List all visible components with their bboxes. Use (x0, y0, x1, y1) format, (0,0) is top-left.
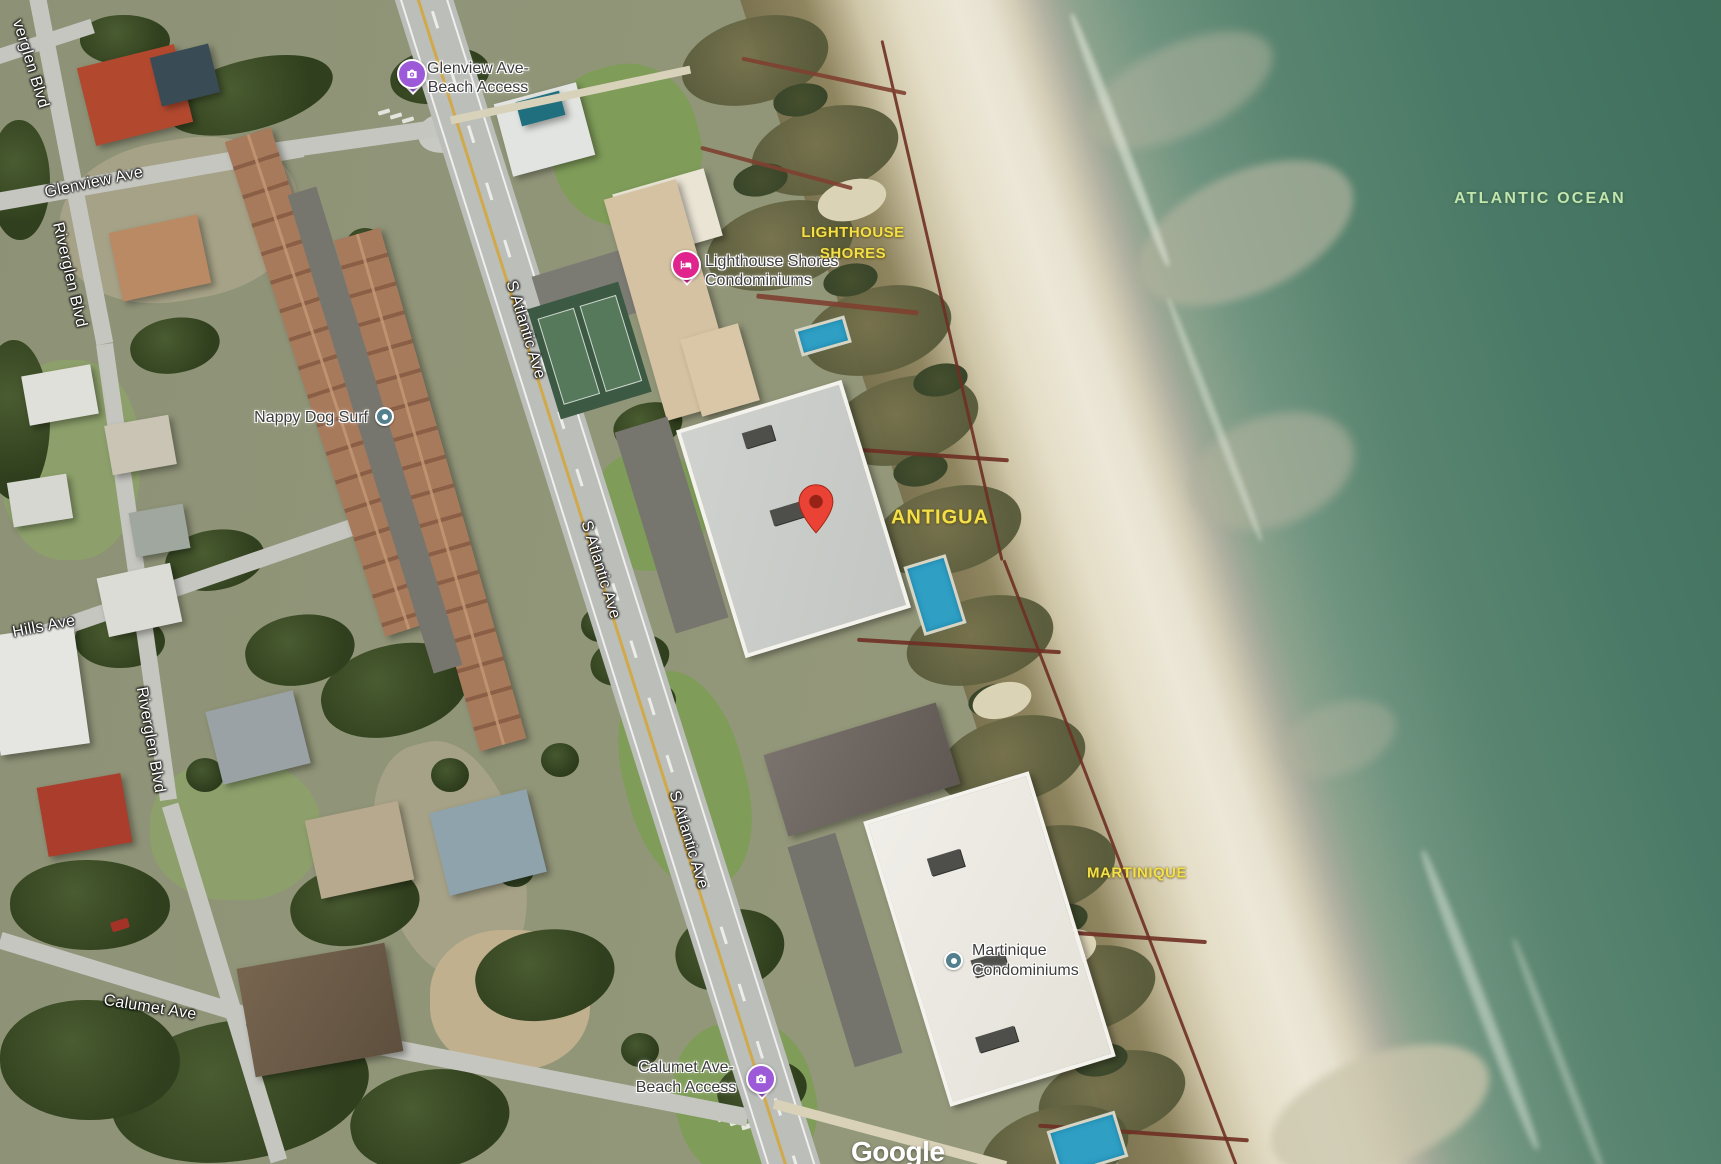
lighthouse-line1: LIGHTHOUSE (801, 222, 904, 243)
tree (431, 758, 469, 792)
shop-dot-icon[interactable] (375, 407, 394, 426)
building-house-gray-3 (205, 690, 310, 785)
poi-label-calumet-access[interactable]: Calumet Ave-Beach Access (600, 1058, 772, 1098)
crosswalk-bar (378, 108, 391, 115)
building-house-gray-1 (104, 415, 177, 476)
area-label-antigua: ANTIGUA (891, 507, 989, 530)
lodging-pin[interactable] (671, 250, 701, 290)
tree (541, 743, 579, 777)
place-marker[interactable] (798, 484, 834, 534)
poi-label-martinique-condos[interactable]: MartiniqueCondominiums (972, 941, 1079, 981)
lodging-dot-icon[interactable] (944, 951, 963, 970)
tree-canopy (10, 860, 170, 950)
satellite-map-canvas[interactable]: Glenview Ave-Beach Access Lighthouse Sho… (0, 0, 1721, 1164)
tree-canopy (0, 1000, 180, 1120)
poi-label-nappy-dog-surf[interactable]: Nappy Dog Surf (240, 408, 368, 427)
martinique-rooftop-units-3 (975, 1026, 1018, 1053)
beach-access-pin[interactable] (397, 59, 427, 99)
lighthouse-line2: SHORES (801, 243, 904, 264)
area-label-lighthouse-shores: LIGHTHOUSE SHORES (801, 222, 904, 264)
bed-icon (671, 250, 701, 280)
tree-canopy (126, 310, 224, 380)
antigua-rooftop-units-1 (742, 425, 775, 449)
crosswalk-bar (390, 112, 403, 119)
building-house-white-corner (97, 563, 183, 637)
area-label-martinique: MARTINIQUE (1087, 865, 1187, 882)
building-house-brown-large (237, 943, 404, 1077)
poi-label-glenview-access[interactable]: Glenview Ave-Beach Access (427, 59, 529, 97)
martinique-rooftop-units-1 (927, 849, 965, 876)
building-house-red-roof-2 (37, 773, 133, 857)
area-label-atlantic-ocean: ATLANTIC OCEAN (1454, 190, 1626, 208)
camera-icon (397, 59, 427, 89)
building-house-white-2 (7, 474, 73, 528)
building-house-gray-2 (129, 504, 191, 558)
tree-canopy (0, 120, 50, 240)
google-watermark[interactable]: Google (851, 1136, 944, 1164)
